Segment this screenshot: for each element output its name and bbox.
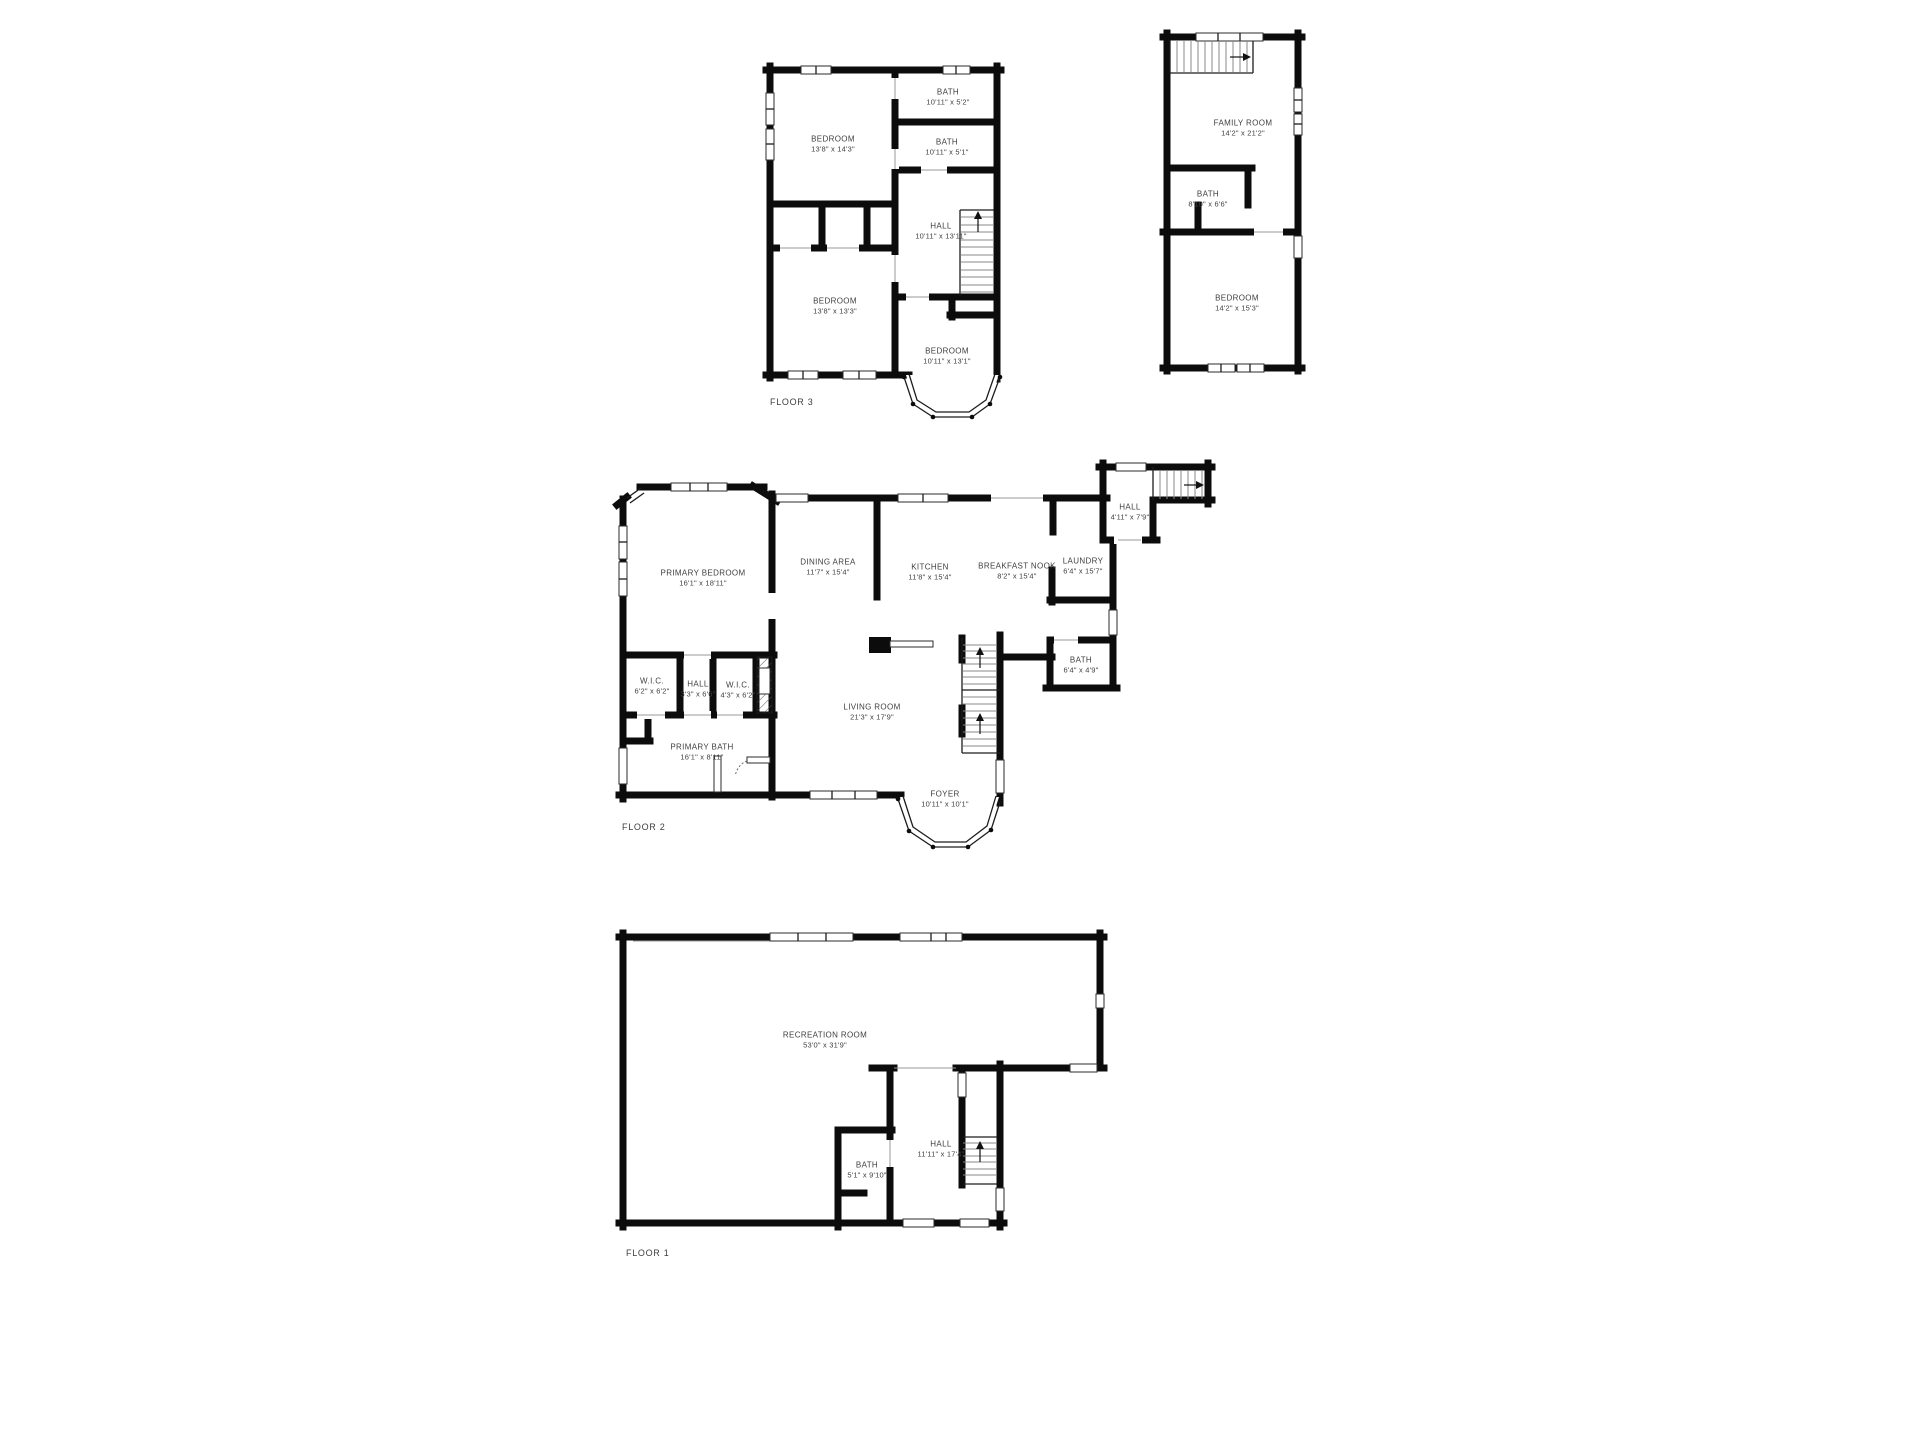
room-name: BATH <box>1064 656 1099 666</box>
room-name: DINING AREA <box>800 558 855 568</box>
floor-3-title: FLOOR 3 <box>770 397 813 407</box>
room-dims: 8'2" x 15'4" <box>978 572 1056 581</box>
room-name: W.I.C. <box>635 677 670 687</box>
room-dims: 10'11" x 13'11" <box>915 232 966 241</box>
room-dims: 53'0" x 31'9" <box>783 1041 867 1050</box>
room-name: FOYER <box>921 790 969 800</box>
room-name: BATH <box>926 88 969 98</box>
room-label-f3-bedroom-2: BEDROOM 13'8" x 13'3" <box>813 297 857 316</box>
room-label-f2-wic-left: W.I.C. 6'2" x 6'2" <box>635 677 670 696</box>
room-label-f1-bath: BATH 5'1" x 9'10" <box>847 1161 886 1180</box>
room-label-f2-foyer: FOYER 10'11" x 10'1" <box>921 790 969 809</box>
room-label-f2-breakfast-nook: BREAKFAST NOOK 8'2" x 15'4" <box>978 562 1056 581</box>
room-name: PRIMARY BATH <box>670 743 733 753</box>
room-name: W.I.C. <box>721 681 756 691</box>
room-name: KITCHEN <box>908 563 951 573</box>
floor-2-main-staircase <box>962 638 1000 753</box>
room-label-f2-hall-upper: HALL 4'11" x 7'9" <box>1111 503 1150 522</box>
room-label-f3-bath-2: BATH 10'11" x 5'1" <box>925 138 968 157</box>
room-name: RECREATION ROOM <box>783 1031 867 1041</box>
room-dims: 13'8" x 14'3" <box>811 145 855 154</box>
room-label-f3-bath-1: BATH 10'11" x 5'2" <box>926 88 969 107</box>
room-dims: 10'11" x 5'2" <box>926 98 969 107</box>
room-name: BEDROOM <box>1215 294 1259 304</box>
room-name: BATH <box>1188 190 1227 200</box>
room-label-f2-kitchen: KITCHEN 11'8" x 15'4" <box>908 563 951 582</box>
room-label-f3-annex-bath: BATH 8'10" x 6'6" <box>1188 190 1227 209</box>
room-dims: 21'3" x 17'9" <box>843 713 900 722</box>
floor-2-title: FLOOR 2 <box>622 822 665 832</box>
floor-3-bay-window <box>902 374 1003 419</box>
room-label-f2-primary-bath: PRIMARY BATH 16'1" x 8'11" <box>670 743 733 762</box>
room-label-f2-living-room: LIVING ROOM 21'3" x 17'9" <box>843 703 900 722</box>
floor-1-plan <box>619 933 1104 1227</box>
room-label-f3-hall: HALL 10'11" x 13'11" <box>915 222 966 241</box>
room-label-f2-wic-right: W.I.C. 4'3" x 6'2" <box>721 681 756 700</box>
room-dims: 4'11" x 7'9" <box>1111 513 1150 522</box>
room-label-f2-hall-small: HALL 3'3" x 6'6" <box>681 680 716 699</box>
chimney <box>869 637 891 653</box>
room-dims: 8'10" x 6'6" <box>1188 200 1227 209</box>
room-name: BATH <box>925 138 968 148</box>
room-name: BATH <box>847 1161 886 1171</box>
annex-door-openings <box>1254 228 1283 236</box>
room-label-f2-dining-area: DINING AREA 11'7" x 15'4" <box>800 558 855 577</box>
room-name: BEDROOM <box>923 347 971 357</box>
room-dims: 5'1" x 9'10" <box>847 1171 886 1180</box>
room-label-f2-laundry: LAUNDRY 6'4" x 15'7" <box>1063 557 1104 576</box>
room-dims: 16'1" x 18'11" <box>661 579 746 588</box>
room-dims: 14'2" x 15'3" <box>1215 304 1259 313</box>
room-dims: 6'4" x 15'7" <box>1063 567 1104 576</box>
room-dims: 3'3" x 6'6" <box>681 690 716 699</box>
room-name: LAUNDRY <box>1063 557 1104 567</box>
room-name: BEDROOM <box>811 135 855 145</box>
room-name: BEDROOM <box>813 297 857 307</box>
room-dims: 11'11" x 17'4" <box>918 1150 965 1159</box>
floor-3-annex-plan <box>1163 33 1302 372</box>
room-label-f3-annex-bedroom: BEDROOM 14'2" x 15'3" <box>1215 294 1259 313</box>
room-label-f3-bedroom-1: BEDROOM 13'8" x 14'3" <box>811 135 855 154</box>
kitchen-half-wall <box>890 641 933 647</box>
room-dims: 6'4" x 4'9" <box>1064 666 1099 675</box>
room-label-f2-bath: BATH 6'4" x 4'9" <box>1064 656 1099 675</box>
annex-staircase <box>1170 41 1253 73</box>
room-label-f1-hall: HALL 11'11" x 17'4" <box>918 1140 965 1159</box>
floor-1-title: FLOOR 1 <box>626 1248 669 1258</box>
room-name: PRIMARY BEDROOM <box>661 569 746 579</box>
room-dims: 14'2" x 21'2" <box>1214 129 1273 138</box>
room-dims: 10'11" x 13'1" <box>923 357 971 366</box>
room-dims: 13'8" x 13'3" <box>813 307 857 316</box>
room-name: HALL <box>915 222 966 232</box>
room-dims: 10'11" x 5'1" <box>925 148 968 157</box>
floor-3-door-openings <box>780 78 947 301</box>
floor-1-door-openings <box>633 941 956 1167</box>
room-dims: 16'1" x 8'11" <box>670 753 733 762</box>
floor-2-shaft-hatch <box>757 657 772 713</box>
floorplan-drawing <box>0 0 1920 1440</box>
room-label-f3-family-room: FAMILY ROOM 14'2" x 21'2" <box>1214 119 1273 138</box>
floor-1-windows <box>770 933 1104 1227</box>
floorplan-page: BEDROOM 13'8" x 14'3" BATH 10'11" x 5'2"… <box>0 0 1920 1440</box>
room-name: BREAKFAST NOOK <box>978 562 1056 572</box>
room-name: HALL <box>1111 503 1150 513</box>
floor-1-staircase <box>963 1137 997 1184</box>
room-label-f1-recreation-room: RECREATION ROOM 53'0" x 31'9" <box>783 1031 867 1050</box>
room-name: HALL <box>918 1140 965 1150</box>
room-name: HALL <box>681 680 716 690</box>
floor-3-plan <box>766 66 1002 419</box>
room-label-f3-bedroom-3: BEDROOM 10'11" x 13'1" <box>923 347 971 366</box>
room-label-f2-primary-bedroom: PRIMARY BEDROOM 16'1" x 18'11" <box>661 569 746 588</box>
room-dims: 11'7" x 15'4" <box>800 568 855 577</box>
floor-2-upper-staircase <box>1153 467 1204 500</box>
room-name: FAMILY ROOM <box>1214 119 1273 129</box>
room-dims: 4'3" x 6'2" <box>721 691 756 700</box>
room-name: LIVING ROOM <box>843 703 900 713</box>
room-dims: 10'11" x 10'1" <box>921 800 969 809</box>
room-dims: 11'8" x 15'4" <box>908 573 951 582</box>
room-dims: 6'2" x 6'2" <box>635 687 670 696</box>
